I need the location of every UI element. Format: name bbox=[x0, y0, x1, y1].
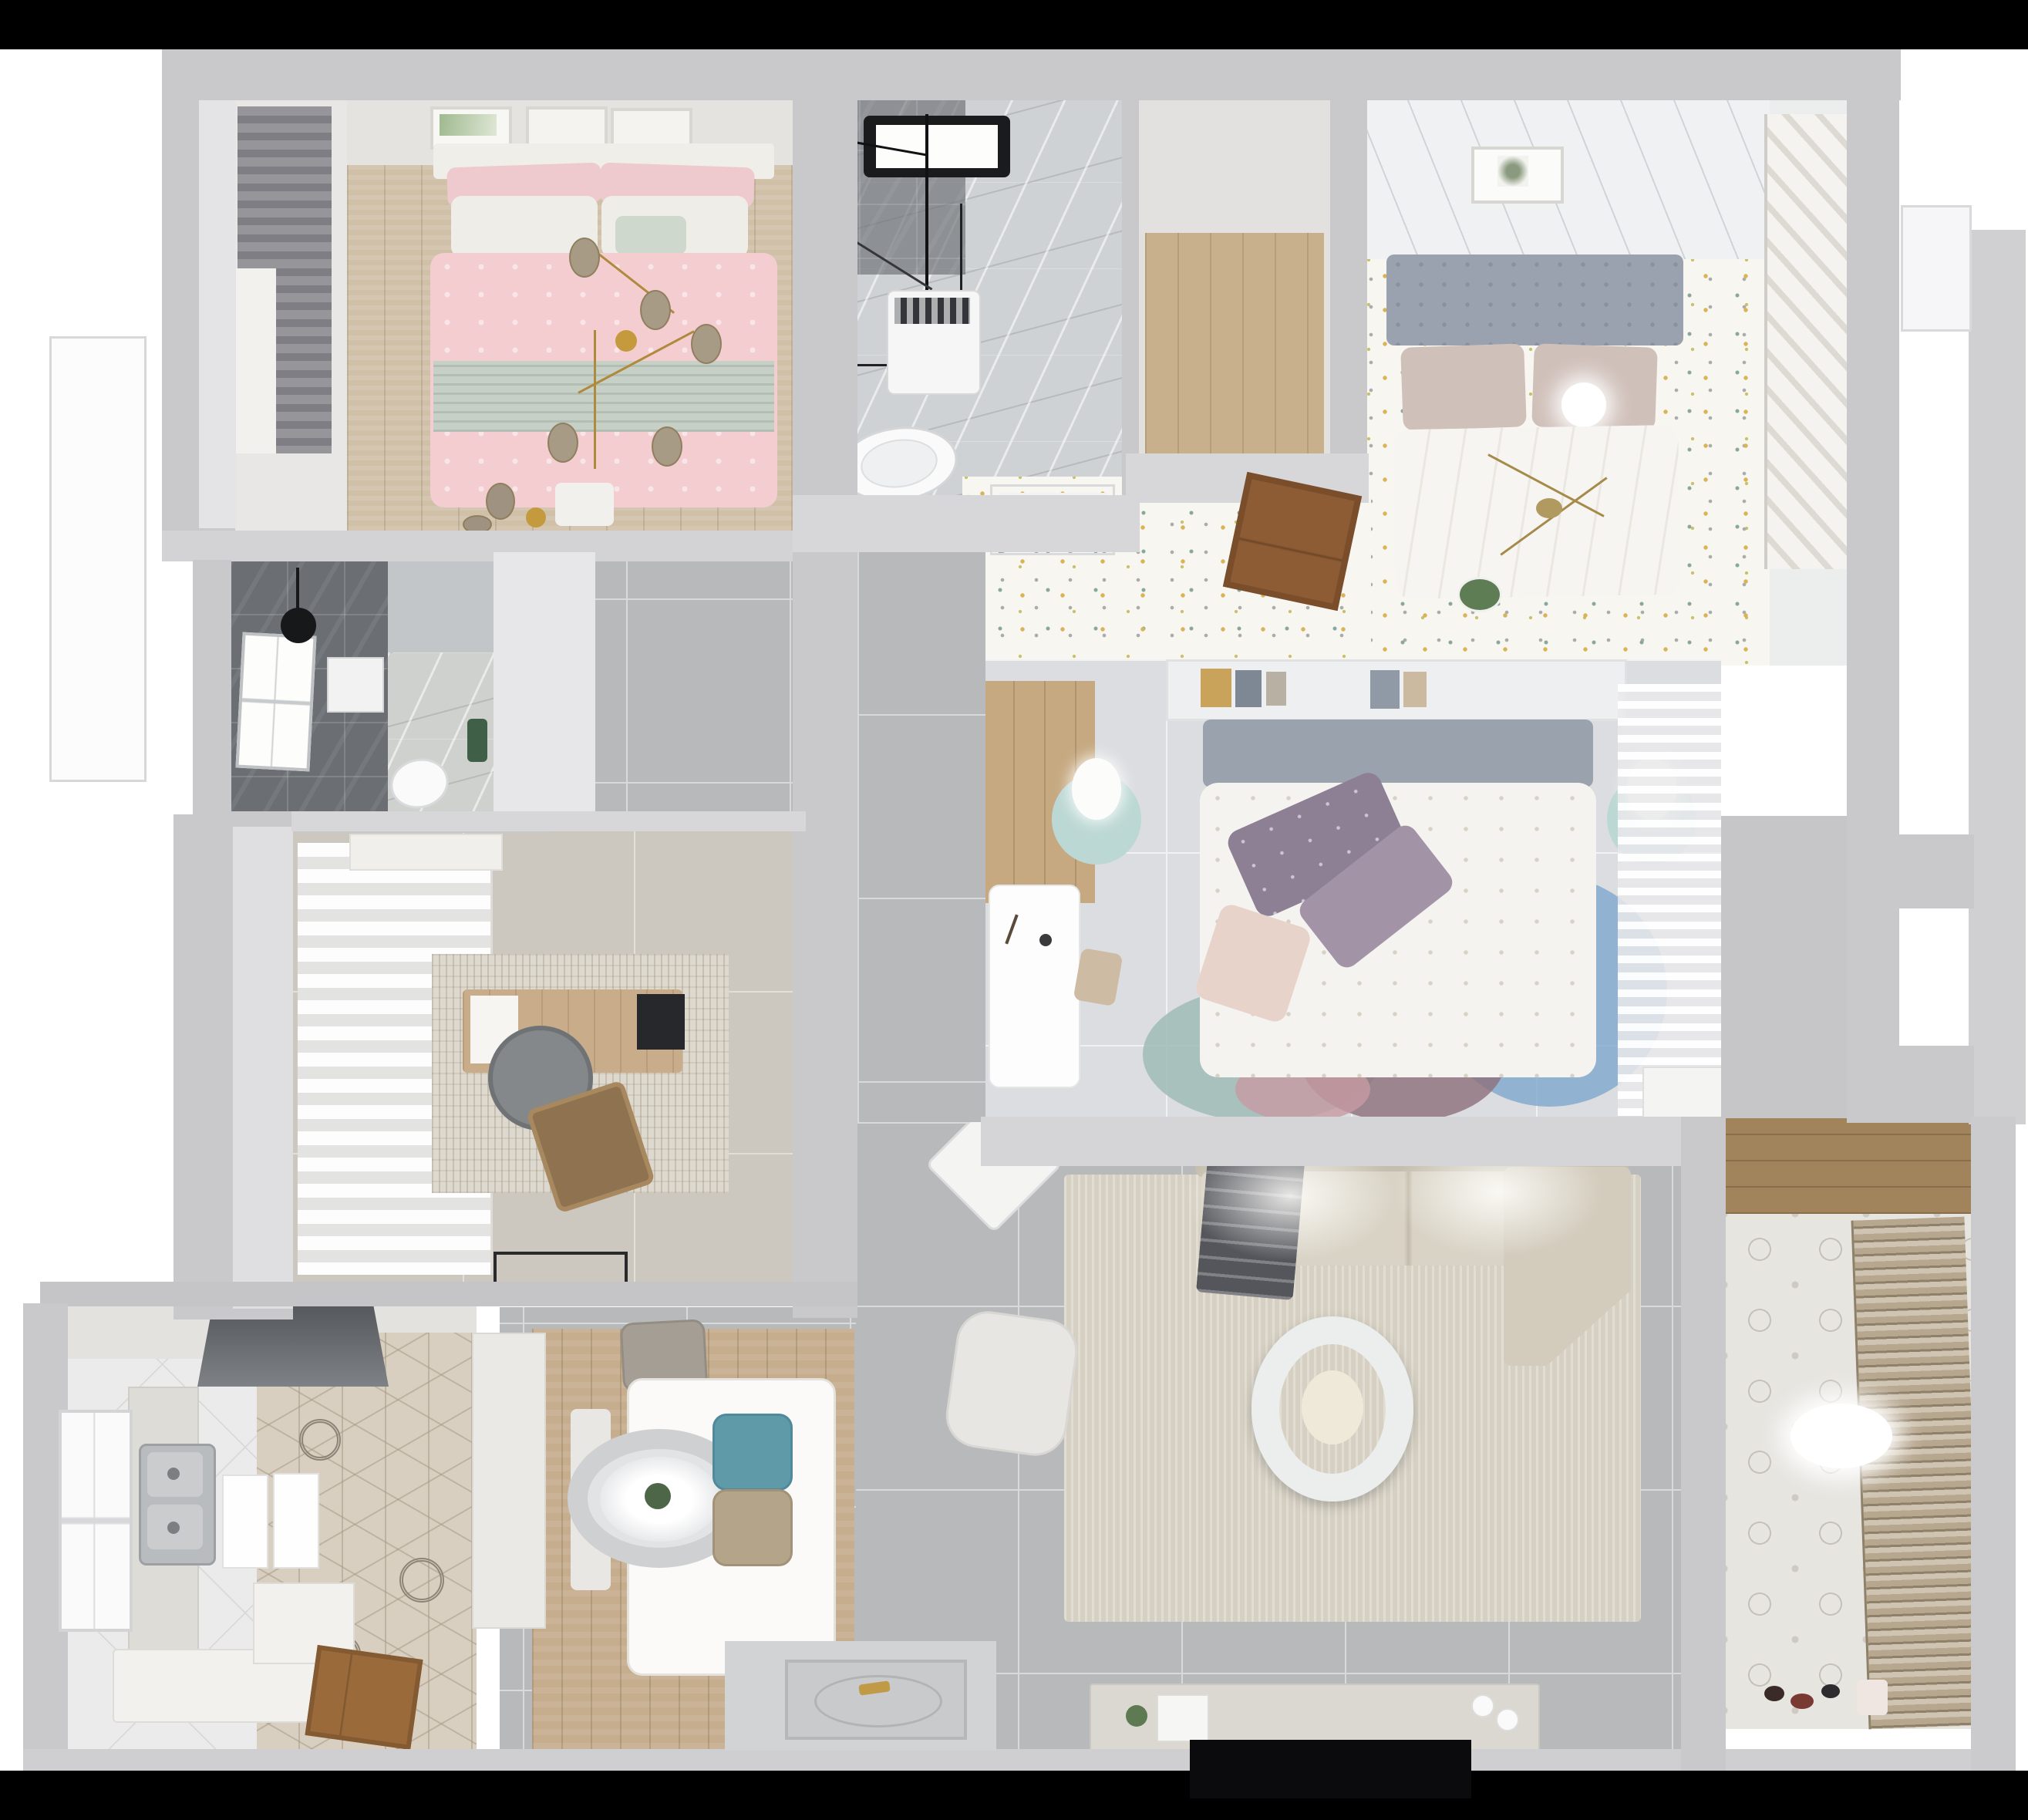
room-bedroom-pink bbox=[231, 99, 802, 531]
wall-block-bedroom-balcony bbox=[1721, 816, 1847, 1118]
chandelier-bulb bbox=[640, 290, 671, 330]
ledge-plant bbox=[1457, 577, 1502, 612]
shelf-book bbox=[1370, 670, 1400, 709]
open-wood-door bbox=[305, 1645, 423, 1750]
floor-toy bbox=[1791, 1694, 1814, 1709]
floor-toy bbox=[1764, 1686, 1784, 1701]
corridor-floor bbox=[857, 531, 985, 1124]
double-sink bbox=[139, 1444, 216, 1566]
wall-bath-closet bbox=[1122, 49, 1139, 501]
white-armchair bbox=[942, 1307, 1081, 1460]
balcony-ceiling-light bbox=[1791, 1404, 1892, 1468]
coffee-table-center bbox=[1302, 1370, 1363, 1444]
room-study bbox=[291, 829, 804, 1284]
sage-throw-band bbox=[433, 361, 774, 432]
window-bench bbox=[1642, 1067, 1721, 1121]
wood-floor bbox=[1145, 233, 1324, 469]
chandelier-bulb bbox=[547, 423, 578, 463]
wall-living-balcony bbox=[1681, 1117, 1726, 1771]
room-entry-closet bbox=[1137, 96, 1332, 475]
headboard-tufted bbox=[1386, 254, 1683, 345]
console-boxes bbox=[1157, 1694, 1209, 1742]
window-bay-left bbox=[199, 100, 236, 528]
kitchen-tall-cabinet bbox=[472, 1333, 546, 1629]
drain bbox=[167, 1522, 180, 1534]
chair-beige bbox=[712, 1489, 793, 1566]
wall-balcony-right bbox=[1971, 1117, 2016, 1771]
top-black-band bbox=[0, 0, 2028, 49]
hex-motif bbox=[399, 1558, 444, 1603]
shower-pole bbox=[925, 114, 928, 312]
wall-nook-white bbox=[494, 552, 595, 821]
frame-art bbox=[1497, 156, 1528, 187]
shelf-book bbox=[1201, 669, 1231, 707]
wall-pink-south bbox=[162, 531, 793, 561]
pendant-sphere-lamp bbox=[1561, 383, 1606, 427]
window bbox=[235, 632, 316, 772]
wall-top bbox=[162, 49, 1901, 100]
sideboard bbox=[349, 834, 503, 871]
sheer-curtain bbox=[1618, 684, 1721, 1116]
wall-darkbath-left bbox=[193, 560, 231, 822]
drain bbox=[167, 1468, 180, 1480]
pendant-plant bbox=[645, 1483, 671, 1509]
shelf-book bbox=[1403, 672, 1427, 707]
room-bedroom-center bbox=[981, 659, 1721, 1122]
headboard bbox=[1203, 720, 1593, 787]
floor-chandelier-hub bbox=[526, 507, 546, 527]
wall-closet-bedroom bbox=[1330, 49, 1367, 480]
mirror bbox=[327, 657, 384, 713]
foot-bench bbox=[555, 483, 614, 526]
balcony-towel bbox=[1857, 1680, 1888, 1715]
white-desk bbox=[989, 885, 1080, 1088]
wall-far-right-column bbox=[1969, 230, 2026, 1124]
entry-mat bbox=[785, 1660, 967, 1740]
plant bbox=[467, 719, 487, 762]
chandelier-hub bbox=[615, 330, 637, 352]
tv-panel bbox=[1190, 1740, 1471, 1798]
ceiling-panels bbox=[1365, 83, 1770, 259]
console-plant bbox=[1126, 1705, 1147, 1727]
wall-study-north bbox=[291, 811, 806, 831]
monitor bbox=[637, 994, 685, 1050]
wall-right-arm-lower bbox=[1897, 1046, 1974, 1123]
sage-mini-pillow bbox=[615, 216, 686, 254]
open-door-hallway bbox=[1223, 472, 1362, 611]
wall-study-left-inner bbox=[233, 827, 293, 1309]
room-bathroom-dark bbox=[230, 560, 494, 819]
skylight-glass bbox=[876, 125, 998, 168]
shelf-book bbox=[1266, 672, 1286, 706]
wall-central-column bbox=[793, 49, 857, 1318]
white-door-left-exterior bbox=[49, 336, 147, 782]
washer-control-panel bbox=[894, 298, 970, 324]
chandelier-bulb bbox=[652, 426, 682, 467]
kitchen-window bbox=[59, 1410, 133, 1632]
counter-panel bbox=[222, 1475, 268, 1569]
desk-hole bbox=[1039, 934, 1052, 946]
counter-panel bbox=[273, 1473, 319, 1569]
chandelier-bulb bbox=[691, 324, 722, 364]
desk-stool bbox=[1073, 948, 1123, 1006]
floor-plan-scene bbox=[0, 0, 2028, 1820]
wall-right-exterior bbox=[1847, 49, 1899, 1123]
console-bottle bbox=[1471, 1694, 1494, 1717]
louvered-blinds bbox=[1851, 1217, 1983, 1730]
wall-right-arm-upper bbox=[1897, 834, 1974, 908]
gold-chandelier-hub bbox=[1536, 498, 1562, 518]
bottom-black-band bbox=[0, 1771, 2028, 1820]
lamp-left bbox=[1072, 758, 1121, 820]
chair-teal bbox=[712, 1414, 793, 1491]
botanical-print bbox=[440, 114, 497, 136]
room-bedroom-master bbox=[1365, 83, 1851, 666]
hex-motif bbox=[299, 1419, 341, 1461]
wall-bedroom-center-south bbox=[981, 1117, 1723, 1166]
pillow-left bbox=[1400, 343, 1527, 431]
slatted-wardrobe bbox=[1764, 114, 1851, 569]
shelf-book bbox=[1235, 670, 1262, 707]
wall-study-kitchen-band bbox=[40, 1282, 857, 1306]
floor-toy bbox=[1821, 1684, 1840, 1698]
light-wall-zone bbox=[388, 560, 494, 652]
chandelier-bulb bbox=[569, 238, 600, 278]
chandelier-branch-3 bbox=[594, 330, 596, 469]
console-bottle bbox=[1496, 1708, 1519, 1731]
wall-bath-south bbox=[793, 495, 1140, 552]
floor-chandelier-bulb bbox=[463, 515, 492, 531]
floor-chandelier-bulb bbox=[486, 483, 515, 520]
white-door-right bbox=[1901, 205, 1972, 332]
window-light bbox=[231, 268, 276, 453]
doormat bbox=[494, 1252, 628, 1284]
picture-frame bbox=[1471, 147, 1564, 204]
shower-stem bbox=[296, 568, 299, 614]
